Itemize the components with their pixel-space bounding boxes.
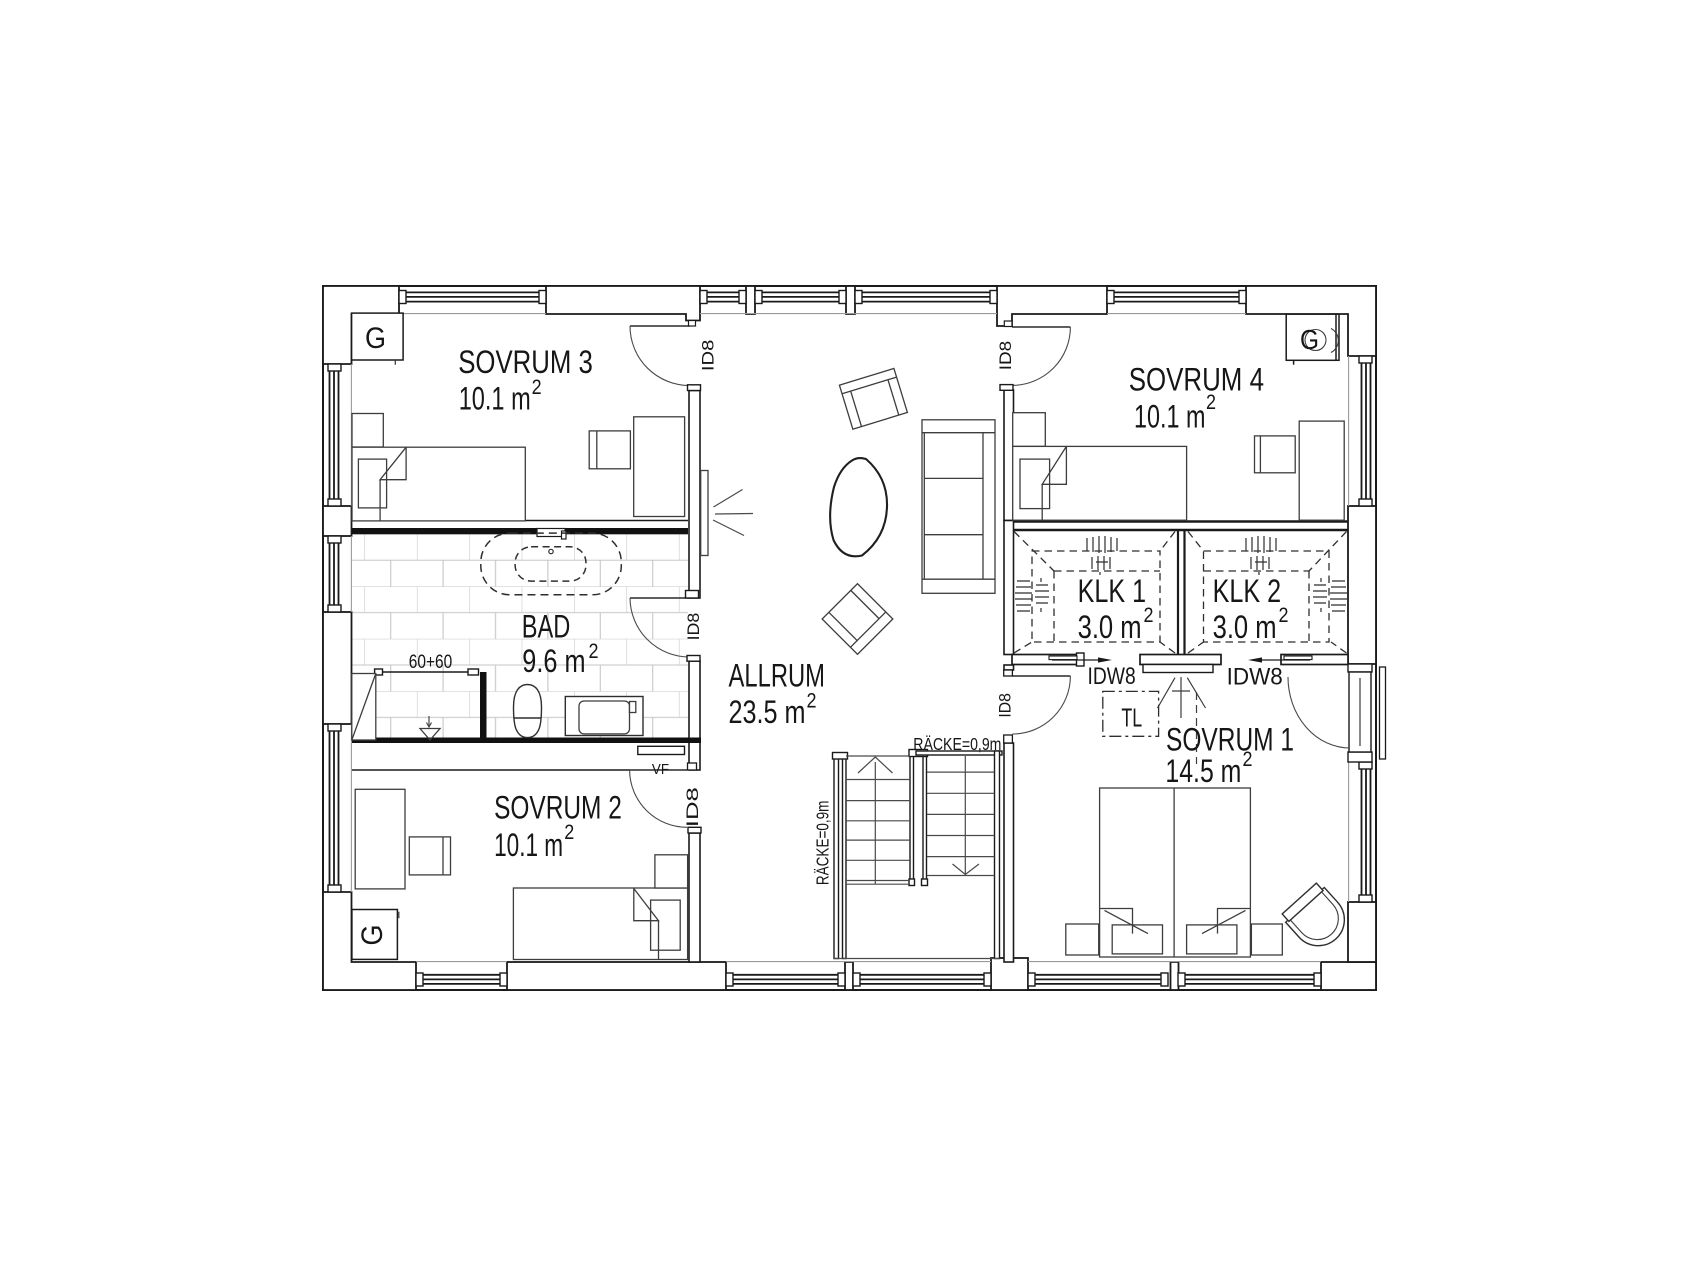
- svg-text:IDW8: IDW8: [1088, 663, 1136, 690]
- svg-text:SOVRUM 2: SOVRUM 2: [494, 790, 622, 826]
- svg-text:SOVRUM 4: SOVRUM 4: [1129, 362, 1264, 398]
- svg-text:ID8: ID8: [699, 340, 718, 372]
- svg-text:2: 2: [1279, 604, 1289, 627]
- svg-text:G: G: [365, 322, 386, 355]
- svg-text:9.6 m: 9.6 m: [522, 643, 585, 679]
- svg-text:23.5 m: 23.5 m: [729, 694, 806, 730]
- svg-text:G: G: [356, 925, 389, 946]
- svg-text:14.5 m: 14.5 m: [1165, 753, 1241, 789]
- svg-text:BAD: BAD: [522, 608, 571, 644]
- svg-text:2: 2: [532, 376, 542, 399]
- svg-text:RÄCKE=0,9m: RÄCKE=0,9m: [913, 734, 1001, 754]
- svg-text:2: 2: [1206, 391, 1216, 414]
- svg-text:ID8: ID8: [683, 787, 702, 827]
- svg-text:10.1 m: 10.1 m: [1134, 398, 1205, 434]
- svg-text:10.1 m: 10.1 m: [494, 827, 563, 863]
- svg-text:10.1 m: 10.1 m: [459, 381, 531, 417]
- svg-text:ID8: ID8: [684, 613, 703, 641]
- svg-text:KLK 1: KLK 1: [1078, 573, 1147, 609]
- svg-text:2: 2: [1243, 748, 1253, 771]
- svg-text:2: 2: [807, 690, 817, 713]
- svg-text:ID8: ID8: [995, 693, 1014, 718]
- svg-text:ALLRUM: ALLRUM: [729, 657, 826, 693]
- svg-text:SOVRUM 3: SOVRUM 3: [458, 344, 593, 380]
- svg-text:VF: VF: [652, 761, 669, 778]
- svg-text:2: 2: [564, 821, 574, 844]
- svg-text:RÄCKE=0,9m: RÄCKE=0,9m: [813, 801, 833, 886]
- svg-text:TL: TL: [1121, 702, 1142, 732]
- svg-text:IDW8: IDW8: [1227, 664, 1283, 691]
- svg-text:ID8: ID8: [996, 341, 1015, 371]
- svg-text:KLK 2: KLK 2: [1213, 573, 1282, 609]
- svg-text:2: 2: [1144, 604, 1154, 627]
- svg-text:3.0 m: 3.0 m: [1213, 609, 1277, 645]
- svg-text:60+60: 60+60: [409, 652, 452, 673]
- svg-text:G: G: [1300, 324, 1319, 355]
- svg-text:3.0 m: 3.0 m: [1078, 609, 1142, 645]
- svg-text:2: 2: [589, 640, 599, 663]
